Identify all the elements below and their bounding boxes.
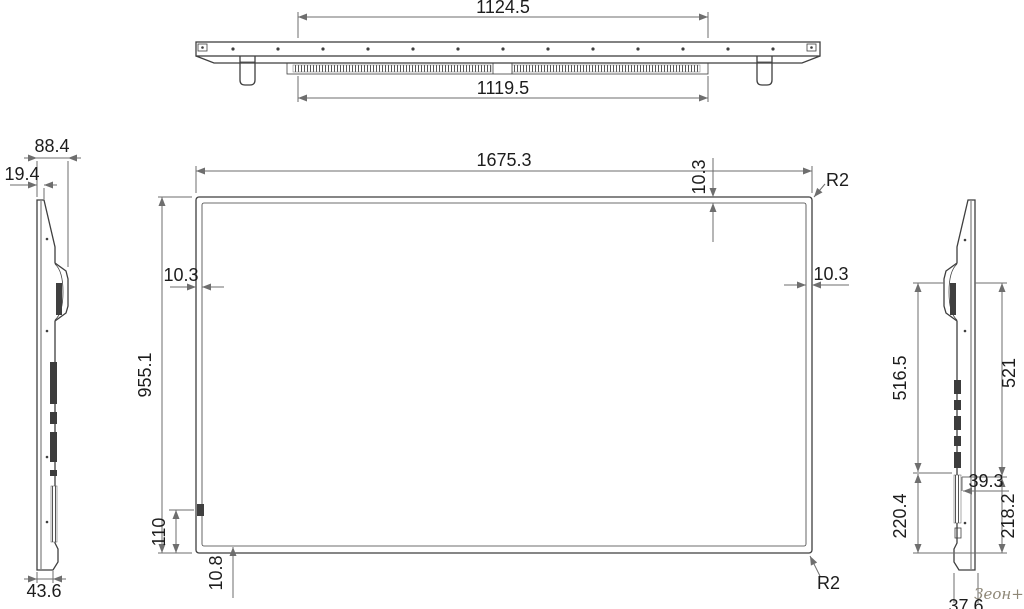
dim-label-right-upper-left: 516.5 [890,355,910,400]
dim-corner-radius-bottom: R2 [810,556,840,593]
corner-screw-right [810,46,813,49]
dim-label-right-port-inset: 39.3 [968,471,1003,491]
dim-left-depth-overall: 88.4 [24,136,81,267]
top-bar-lip [196,56,820,63]
dim-right-port-inset: 39.3 [962,471,1009,491]
vent-hatch-left [293,65,491,72]
right-ports [954,380,961,538]
corner-screw-left [201,46,204,49]
dim-right-lower-left: 220.4 [890,474,918,553]
dim-bezel-right: 10.3 [784,264,849,285]
dim-front-width: 1675.3 [196,150,812,193]
top-view: 1124.5 1119.5 [196,0,820,102]
left-screw-marks [46,238,49,524]
dim-right-upper-right: 521 [999,283,1019,476]
dim-label-bottom-offset: 110 [149,518,169,547]
right-side-view: 516.5 220.4 521 218.2 39.3 37.6 [890,200,1019,609]
dim-label-top-outer-width: 1124.5 [476,0,530,17]
dim-label-right-upper-right: 521 [999,358,1019,388]
dim-label-bezel-left: 10.3 [163,265,198,285]
drawing-canvas: 1124.5 1119.5 1675.3 955.1 10.3 [0,0,1024,609]
dim-bottom-offset: 110 [149,510,194,553]
dim-left-depth-top: 19.4 [4,164,57,199]
dim-right-upper-left: 516.5 [890,283,918,472]
foot-right [757,56,772,85]
dim-label-front-height: 955.1 [135,352,155,397]
dim-label-left-depth-bottom: 43.6 [26,581,61,601]
dim-bezel-left: 10.3 [163,265,224,287]
dim-top-outer-width: 1124.5 [298,0,708,38]
dim-label-right-lower-left: 220.4 [890,493,910,538]
left-side-view: 88.4 19.4 43.6 [4,136,81,601]
screw-holes [231,47,774,50]
right-screw-marks [964,239,967,525]
left-handle-recess [56,283,62,315]
dim-label-left-depth-top: 19.4 [4,164,39,184]
dim-bezel-bottom: 10.8 [206,547,233,598]
dim-label-bezel-top: 10.3 [689,159,709,194]
dim-label-corner-bottom: R2 [817,573,840,593]
dim-label-left-depth-overall: 88.4 [34,136,69,156]
dim-label-right-lower-right: 218.2 [998,493,1018,538]
foot-left [240,56,255,85]
dim-top-inner-width: 1119.5 [298,76,708,102]
dim-corner-radius-top: R2 [814,170,849,197]
dim-label-top-inner-width: 1119.5 [477,78,529,98]
right-handle-recess [950,283,956,315]
dim-left-depth-bottom: 43.6 [24,571,66,601]
left-ports [50,362,57,542]
dim-label-bezel-right: 10.3 [813,264,848,284]
front-outer-frame [196,197,812,553]
dim-front-height: 955.1 [135,197,192,553]
watermark: Зеон+ [974,585,1024,603]
dim-label-bezel-bottom: 10.8 [206,555,226,590]
dim-label-front-width: 1675.3 [476,150,531,170]
front-screen-edge [202,203,806,546]
vent-hatch-right [512,65,700,72]
dimension-drawing: 1124.5 1119.5 1675.3 955.1 10.3 [0,0,1024,609]
dim-label-corner-top: R2 [826,170,849,190]
front-view: 1675.3 955.1 10.3 10.3 10.3 R2 [135,150,849,598]
front-side-port-mark [197,504,204,516]
